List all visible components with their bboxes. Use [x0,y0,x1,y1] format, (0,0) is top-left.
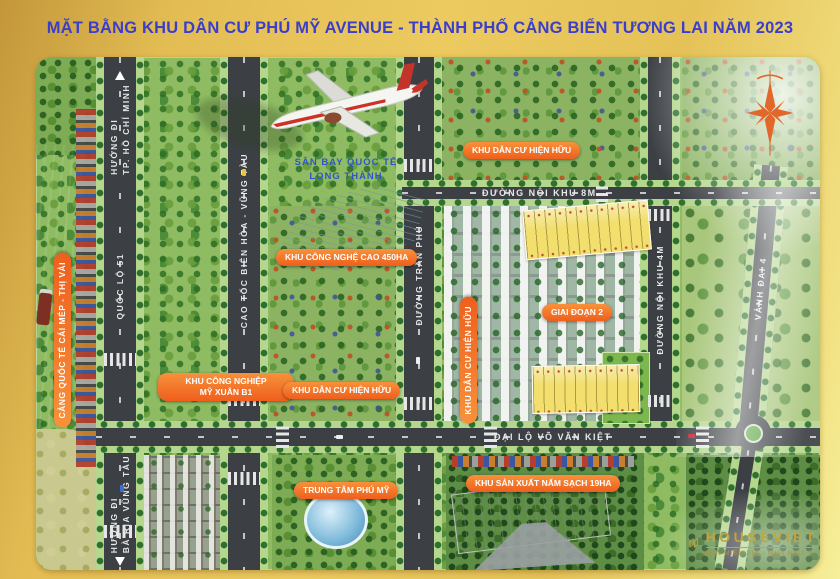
label-mushroom-farm: KHU SẢN XUẤT NẤM SẠCH 19HA [466,475,620,492]
crosswalk [228,472,260,485]
dome-building [304,491,368,549]
lot-strip-south [532,364,641,414]
houseviet-tagline: BÁN MIỄN PHÍ - MUA NHƯ Ý [706,547,818,557]
direction-hcm: HƯỚNG ĐI TP. HỒ CHÍ MINH [104,71,136,175]
townhouse-grid-block [144,455,228,570]
road-label-tran-phu: ĐƯỜNG TRẦN PHÚ [414,225,424,325]
roundabout-island [744,424,763,443]
page-title: MẶT BẰNG KHU DÂN CƯ PHÚ MỸ AVENUE - THÀN… [0,0,840,56]
master-plan-map: HƯỚNG ĐI TP. HỒ CHÍ MINH QUỐC LỘ 51 HƯỚN… [36,57,820,570]
direction-hcm-line1: HƯỚNG ĐI [109,84,119,175]
compass-icon [738,65,802,161]
road-label-noi-khu-4m: ĐƯỜNG NỘI KHU 4M [655,245,665,355]
car [336,435,343,439]
label-industrial-park: KHU CÔNG NGHIỆP MỸ XUÂN B1 [158,373,294,401]
label-existing-residential-mid: KHU DÂN CƯ HIỆN HỮU [283,382,400,399]
crosswalk [648,395,672,407]
crosswalk [404,397,434,410]
gold-frame: MẶT BẰNG KHU DÂN CƯ PHÚ MỸ AVENUE - THÀN… [0,0,840,579]
crosswalk [104,353,136,366]
airplane-icon [258,57,436,155]
airport-note-line1: SÂN BAY QUỐC TẾ [286,156,406,170]
houseviet-logo: HOUSEVIET BÁN MIỄN PHÍ - MUA NHƯ Ý [688,519,818,567]
road-label-vo-van-kiet: ĐẠI LỘ VÕ VĂN KIỆT [494,432,612,442]
roundabout [735,415,771,451]
airport-note-line2: LONG THÀNH [286,170,406,184]
arrow-down-icon [115,557,125,566]
label-industrial-park-line1: KHU CÔNG NGHIỆP [167,376,285,387]
label-existing-residential-top: KHU DÂN CƯ HIỆN HỮU [463,142,580,159]
crosswalk [484,426,497,448]
label-phase-2: GIAI ĐOẠN 2 [542,304,612,321]
crosswalk [648,209,672,221]
label-hightech-park: KHU CÔNG NGHỆ CAO 450HA [276,249,417,266]
car [688,434,695,438]
car [416,357,420,364]
road-quoc-lo-51: HƯỚNG ĐI TP. HỒ CHÍ MINH QUỐC LỘ 51 HƯỚN… [96,57,144,570]
direction-brvt-line1: HƯỚNG ĐI [109,455,119,553]
label-phu-my-center: TRUNG TÂM PHÚ MỸ [294,482,398,499]
crosswalk [404,159,434,172]
crosswalk [104,525,136,538]
road-centerline [96,436,820,438]
arrow-up-icon [115,71,125,80]
road-label-cao-toc: CAO TỐC BIÊN HÒA - VŨNG TÀU [239,153,249,328]
road-vo-van-kiet: ĐẠI LỘ VÕ VĂN KIỆT [96,421,820,453]
existing-residential-block-north [408,57,640,180]
road-label-noi-khu-8m: ĐƯỜNG NỘI KHU 8M [482,188,597,198]
direction-brvt: HƯỚNG ĐI BÀ RỊA VŨNG TÀU [104,455,136,566]
crosswalk [276,426,289,448]
container-row [452,456,634,467]
road-centerline [402,192,820,194]
label-existing-residential-project: KHU DÂN CƯ HIỆN HỮU [460,297,477,424]
crosswalk [596,185,608,202]
houseviet-logo-mark [688,523,700,563]
houseviet-logo-text: HOUSEVIET [706,530,818,544]
car [120,485,124,492]
road-label-ql51: QUỐC LỘ 51 [115,253,125,319]
direction-hcm-line2: TP. HỒ CHÍ MINH [121,84,131,175]
airport-note: SÂN BAY QUỐC TẾ LONG THÀNH [286,156,406,185]
label-port: CẢNG QUỐC TẾ CÁI MÉP - THỊ VẢI [54,253,71,428]
car [242,169,246,176]
road-label-vanh-dai-4: VÀNH ĐAI 4 [753,257,768,321]
crosswalk [696,426,709,448]
direction-brvt-line2: BÀ RỊA VŨNG TÀU [121,455,131,553]
label-industrial-park-line2: MỸ XUÂN B1 [167,387,285,398]
